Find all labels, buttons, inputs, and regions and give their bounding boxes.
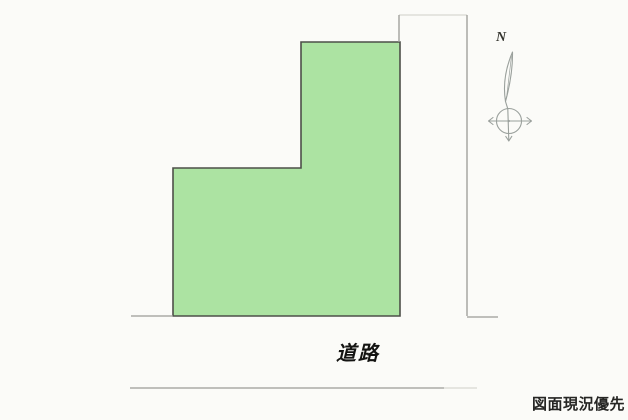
drawing-priority-caption: 図面現況優先 [532, 396, 625, 414]
road-label: 道路 [326, 341, 390, 367]
compass [489, 52, 532, 141]
compass-center-dot [508, 120, 510, 122]
site-plan-scan: N 道路 図面現況優先 [0, 0, 628, 420]
compass-ns-axis [508, 109, 509, 141]
land-plot-shape [173, 42, 400, 316]
compass-stem [506, 102, 508, 109]
compass-north-label: N [496, 31, 506, 45]
diagram-canvas [0, 0, 628, 420]
